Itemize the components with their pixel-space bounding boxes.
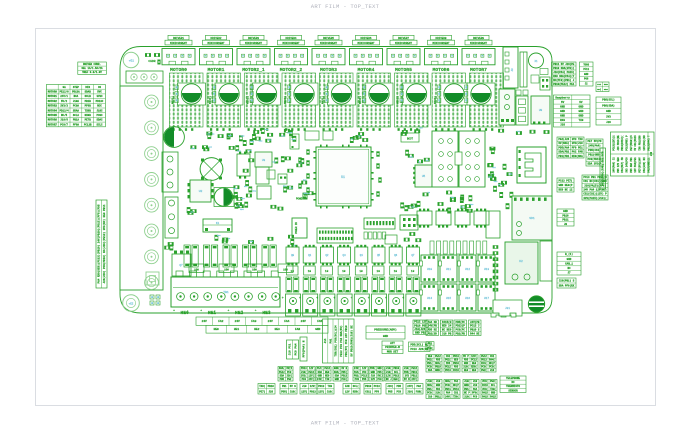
svg-text:J10 PC1: J10 PC1: [289, 343, 292, 355]
svg-text:PG2 FAN: PG2 FAN: [572, 151, 583, 154]
svg-text:PB10: PB10: [562, 214, 569, 217]
svg-text:M1911: M1911: [209, 96, 212, 104]
svg-text:Q4: Q4: [360, 254, 364, 257]
svg-text:J10(PA15)(PF0): J10(PA15)(PF0): [584, 183, 606, 187]
svg-text:VREF 0.8/1.0V: VREF 0.8/1.0V: [82, 71, 102, 74]
svg-text:24V(PB: 24V(PB: [428, 324, 438, 328]
svg-text:PB11: PB11: [435, 395, 441, 398]
svg-text:PF0(PA4) N: PF0(PA4) N: [302, 340, 306, 357]
svg-text:MOTOR5: MOTOR5: [48, 114, 58, 117]
svg-text:PRESSURE(ADV): PRESSURE(ADV): [374, 327, 397, 331]
svg-text:12V PA4(PE1: 12V PA4(PE1: [634, 157, 637, 173]
svg-text:24V: 24V: [235, 320, 240, 323]
svg-text:M7911: M7911: [434, 96, 437, 104]
svg-text:MINICURRENT: MINICURRENT: [357, 42, 375, 45]
svg-text:PF0: PF0: [302, 378, 307, 381]
svg-text:PA4(J26) RX: PA4(J26) RX: [643, 157, 646, 173]
svg-text:MGR SET: MGR SET: [387, 350, 399, 353]
svg-text:TX0(CS1) PC9(SCL)(24: TX0(CS1) PC9(SCL)(24: [334, 325, 338, 357]
svg-text:J10: J10: [428, 395, 433, 398]
svg-text:Q2: Q2: [325, 254, 329, 257]
svg-text:J14: J14: [324, 338, 327, 343]
svg-text:PA15: PA15: [490, 395, 496, 398]
svg-text:CS1 NC(CS1)(GND: CS1 NC(CS1)(GND: [583, 179, 607, 183]
svg-text:DC: DC: [511, 381, 515, 384]
svg-text:GND(: GND(: [464, 384, 470, 387]
svg-text:M2911: M2911: [247, 96, 250, 104]
svg-text:24V(: 24V(: [354, 367, 360, 370]
svg-text:J26: J26: [560, 124, 565, 127]
svg-text:10: 10: [359, 270, 363, 273]
svg-text:PC9(PC: PC9(PC: [456, 328, 466, 332]
svg-text:PE7(: PE7(: [259, 390, 266, 393]
svg-text:PD5(PA4: PD5(PA4: [558, 145, 569, 149]
svg-text:12V: 12V: [362, 367, 367, 370]
svg-text:GND: GND: [560, 115, 565, 118]
svg-text:DRIVER9: DRIVER9: [473, 37, 484, 40]
svg-text:GND: GND: [436, 384, 441, 387]
svg-text:HE0(: HE0(: [393, 378, 399, 381]
svg-text:SDAC: SDAC: [96, 119, 103, 122]
svg-text:CHDR: CHDR: [148, 60, 155, 63]
svg-text:U14: U14: [427, 297, 432, 300]
svg-text:HE0 24: HE0 24: [442, 325, 452, 328]
svg-text:24V(: 24V(: [411, 378, 417, 381]
svg-text:GND: GND: [578, 110, 583, 113]
svg-text:+: +: [200, 309, 202, 312]
svg-text:+: +: [316, 297, 318, 301]
svg-text:+: +: [299, 297, 301, 301]
svg-text:5V(5: 5V(5: [286, 367, 292, 370]
svg-text:PD13: PD13: [393, 374, 399, 377]
svg-text:-: -: [214, 309, 216, 312]
svg-text:DRIVER5: DRIVER5: [323, 37, 334, 40]
svg-text:PB1(: PB1(: [354, 374, 360, 377]
svg-text:HE0: HE0: [325, 374, 330, 377]
svg-text:MINICURRENT: MINICURRENT: [395, 42, 413, 45]
svg-text:PD5 RX: PD5 RX: [428, 329, 438, 332]
svg-text:MOTOR1: MOTOR1: [48, 95, 58, 98]
svg-text:PC9 PA4: PC9 PA4: [295, 343, 298, 355]
svg-text:PB10 SDA(3V3)(: PB10 SDA(3V3)(: [553, 67, 575, 70]
svg-text:-: -: [241, 309, 243, 312]
svg-text:NC HE0: NC HE0: [442, 329, 452, 332]
svg-text:J10(: J10(: [386, 371, 392, 374]
svg-text:TELEPHONE: TELEPHONE: [506, 377, 520, 380]
svg-text:PE12: PE12: [308, 371, 314, 374]
svg-text:MOTOR2_2: MOTOR2_2: [280, 67, 303, 73]
svg-text:GND: GND: [318, 374, 323, 377]
svg-text:J3: J3: [511, 68, 514, 72]
svg-text:PB11 5V J26(PE: PB11 5V J26(PE: [553, 63, 575, 66]
svg-text:GND: GND: [560, 110, 565, 113]
svg-text:5VC: 5VC: [97, 91, 102, 94]
svg-text:PA1: PA1: [329, 338, 332, 343]
svg-text:NC/5: NC/5: [61, 113, 68, 117]
svg-text:24V(: 24V(: [445, 395, 451, 398]
svg-text:PG2(: PG2(: [490, 380, 496, 383]
svg-text:5V: 5V: [561, 101, 565, 104]
svg-text:MINICURRENT: MINICURRENT: [207, 42, 225, 45]
svg-text:MINICURRENT: MINICURRENT: [282, 42, 300, 45]
svg-text:PG2(: PG2(: [481, 369, 487, 372]
svg-text:12V(: 12V(: [318, 390, 325, 393]
svg-text:24V: 24V: [268, 320, 273, 323]
svg-text:5V PD13(FAN)(J10) RX: 5V PD13(FAN)(J10) RX: [349, 325, 353, 357]
svg-text:GND HE0(P: GND HE0(P: [558, 183, 572, 187]
svg-text:+: +: [402, 297, 404, 301]
svg-text:PE12/0: PE12/0: [60, 90, 70, 94]
svg-text:FA4: FA4: [284, 320, 289, 323]
svg-text:CS1: CS1: [454, 392, 459, 395]
svg-text:PF0(: PF0(: [377, 378, 383, 381]
svg-text:HE3: HE3: [275, 328, 280, 331]
svg-text:Q7: Q7: [179, 264, 183, 267]
svg-text:5V CS1(PA15: 5V CS1(PA15: [634, 135, 637, 151]
svg-text:CS1(: CS1(: [365, 390, 372, 393]
svg-text:DRIVER7: DRIVER7: [398, 37, 409, 40]
svg-text:PB10(PE12) PE1: PB10(PE12) PE1: [553, 83, 575, 86]
svg-text:TX0B: TX0B: [85, 109, 92, 112]
svg-text:M4911: M4911: [322, 96, 325, 104]
svg-text:-: -: [187, 309, 189, 312]
svg-text:MOTOR6: MOTOR6: [48, 119, 58, 122]
svg-text:GND: GND: [371, 371, 376, 374]
svg-text:GND: GND: [383, 335, 388, 338]
svg-text:J10 PB: J10 PB: [442, 333, 452, 336]
svg-text:PB11: PB11: [411, 371, 417, 374]
svg-text:PB11: PB11: [411, 374, 417, 377]
svg-text:STEP: STEP: [73, 86, 80, 89]
svg-text:PE7(PB10)(5: PE7(PB10)(5: [630, 135, 633, 151]
svg-text:PG2: PG2: [417, 385, 422, 388]
svg-text:+: +: [255, 309, 257, 312]
svg-text:CAN_1: CAN_1: [565, 262, 573, 265]
svg-text:PC13B: PC13B: [84, 123, 92, 126]
svg-text:GND PB1: GND PB1: [415, 332, 426, 335]
svg-text:PC9/7: PC9/7: [60, 122, 68, 126]
svg-text:U5: U5: [422, 175, 426, 178]
svg-text:J26: J26: [269, 390, 274, 393]
svg-text:3V3(: 3V3(: [482, 380, 488, 383]
svg-text:PD13C: PD13C: [96, 100, 104, 103]
svg-text:J10(: J10(: [435, 392, 441, 395]
svg-text:PA15: PA15: [453, 369, 459, 372]
svg-text:PF0(: PF0(: [472, 392, 478, 395]
svg-text:SEL 1A/1.5A/2A: SEL 1A/1.5A/2A: [81, 67, 103, 70]
svg-text:GND: GND: [567, 258, 572, 261]
svg-text:J30: J30: [650, 151, 653, 156]
svg-text:U16: U16: [465, 297, 470, 300]
svg-text:J10(: J10(: [464, 380, 470, 383]
svg-text:10A: 10A: [283, 268, 288, 271]
svg-text:J26(PB1) S: J26(PB1) S: [559, 278, 575, 282]
svg-text:U11: U11: [446, 268, 451, 271]
svg-text:5V: 5V: [579, 101, 583, 104]
svg-text:+: +: [173, 309, 175, 312]
svg-text:SDA PF0(RX: SDA PF0(RX: [559, 283, 575, 287]
svg-text:SD1: SD1: [529, 217, 535, 220]
svg-text:+E2: +E2: [129, 302, 134, 305]
svg-text:MINICURRENT: MINICURRENT: [470, 42, 488, 45]
svg-text:J10(: J10(: [427, 380, 433, 383]
svg-text:3V3/3: 3V3/3: [60, 104, 68, 108]
svg-text:PE12 12V: PE12 12V: [414, 321, 427, 324]
svg-text:Raspberry: Raspberry: [555, 95, 570, 99]
svg-text:5V(2: 5V(2: [377, 374, 383, 377]
svg-text:3V3: 3V3: [405, 374, 410, 377]
svg-text:PB10 PD5: PB10 PD5: [414, 324, 427, 327]
svg-text:3V3(: 3V3(: [301, 374, 307, 377]
svg-text:PF0B: PF0B: [85, 105, 92, 108]
svg-text:J10: J10: [436, 380, 441, 383]
svg-text:FA2: FA2: [218, 320, 223, 323]
svg-text:J10(: J10(: [386, 367, 392, 370]
svg-text:Q3: Q3: [343, 254, 347, 257]
svg-text:PA15(H: PA15(H: [442, 320, 452, 324]
svg-text:NC J: NC J: [386, 378, 392, 381]
svg-text:PD13: PD13: [453, 388, 459, 391]
svg-text:SDA(PB1: SDA(PB1: [558, 150, 569, 154]
svg-text:24V(PA4): 24V(PA4): [588, 144, 601, 148]
svg-text:10: 10: [394, 270, 398, 273]
svg-text:SDAB: SDAB: [85, 91, 92, 94]
svg-text:SDA(: SDA(: [334, 371, 340, 374]
svg-text:MINICURRENT: MINICURRENT: [245, 42, 263, 45]
svg-text:Q7: Q7: [411, 254, 415, 257]
svg-text:MOTOR6: MOTOR6: [433, 67, 450, 73]
svg-text:PB1A: PB1A: [73, 119, 80, 122]
svg-text:PC13(PD5) P: PC13(PD5) P: [626, 135, 629, 151]
svg-text:24V/1: 24V/1: [60, 94, 68, 98]
svg-text:PC9A: PC9A: [73, 105, 80, 108]
svg-text:J10(: J10(: [404, 367, 410, 370]
svg-text:PD13: PD13: [310, 390, 317, 393]
svg-text:U12: U12: [465, 268, 470, 271]
svg-text:+: +: [351, 297, 353, 301]
svg-text:M6911: M6911: [397, 96, 400, 104]
svg-text:U17: U17: [484, 297, 489, 300]
svg-text:MINICURRENT: MINICURRENT: [320, 42, 338, 45]
svg-text:J10C: J10C: [96, 109, 103, 112]
svg-text:3V3(PA15)(J10)(: 3V3(PA15)(J10)(: [583, 196, 607, 200]
svg-text:10: 10: [325, 270, 329, 273]
svg-text:DRIVER CURR.: DRIVER CURR.: [83, 63, 101, 66]
svg-text:PB1(SD: PB1(SD: [428, 332, 438, 336]
svg-text:HE0: HE0: [464, 369, 469, 372]
svg-text:SDA: SDA: [280, 374, 285, 377]
svg-text:PG2: PG2: [428, 343, 433, 346]
svg-text:MOTOR0: MOTOR0: [48, 91, 58, 94]
svg-text:NC: NC: [567, 267, 571, 270]
svg-text:5V N: 5V N: [404, 378, 410, 381]
svg-text:PG2(J26: PG2(J26: [558, 137, 569, 141]
svg-text:PC13(12V)(1: PC13(12V)(1: [613, 135, 616, 151]
svg-text:J10(J26): J10(J26): [414, 327, 427, 331]
svg-text:U1: U1: [341, 175, 345, 179]
svg-text:DRIVER3: DRIVER3: [248, 37, 259, 40]
svg-text:HE2: HE2: [254, 328, 259, 331]
svg-text:PC9C: PC9C: [96, 114, 103, 117]
svg-text:TOGG: TOGG: [583, 63, 589, 66]
svg-text:24V(: 24V(: [407, 385, 414, 388]
svg-text:PB10 S: PB10 S: [470, 329, 480, 332]
svg-text:MOTOR7: MOTOR7: [470, 67, 487, 73]
svg-text:PD5: PD5: [388, 390, 393, 393]
svg-text:PA4 SD: PA4 SD: [428, 321, 438, 324]
svg-text:PC9: PC9: [473, 395, 478, 398]
svg-text:PC9(: PC9(: [445, 384, 451, 387]
svg-text:J10: J10: [473, 384, 478, 387]
svg-text:J10/6: J10/6: [60, 118, 68, 122]
svg-text:J31: J31: [505, 307, 510, 310]
svg-text:Q1: Q1: [308, 254, 312, 257]
svg-text:U9: U9: [539, 109, 543, 112]
svg-text:J10A: J10A: [73, 100, 80, 103]
svg-text:PD13(P: PD13(P: [456, 324, 466, 328]
svg-text:MOTOR2_1: MOTOR2_1: [242, 67, 265, 73]
svg-text:10A: 10A: [224, 268, 229, 271]
svg-text:GND: GND: [560, 105, 565, 108]
svg-text:TB1: TB1: [223, 291, 229, 294]
svg-text:PG2: PG2: [287, 378, 292, 381]
svg-text:PF0 PE1: PF0 PE1: [572, 146, 583, 149]
svg-text:J26(: J26(: [387, 385, 394, 388]
svg-text:GA: GA: [63, 86, 67, 89]
svg-text:PB1(: PB1(: [464, 388, 470, 391]
svg-text:NCA: NCA: [74, 95, 79, 98]
svg-text:TX0(: TX0(: [453, 395, 459, 398]
svg-text:PA4: PA4: [473, 388, 478, 391]
svg-text:PD13: PD13: [341, 374, 347, 377]
svg-text:PF0(: PF0(: [341, 378, 347, 381]
svg-text:PD5(CS1): PD5(CS1): [588, 148, 601, 152]
svg-text:3V3(: 3V3(: [482, 388, 488, 391]
svg-text:3V3C: 3V3C: [96, 95, 103, 98]
svg-text:PD5(: PD5(: [377, 371, 383, 374]
svg-text:SDA(: SDA(: [427, 384, 433, 387]
svg-text:+: +: [385, 297, 387, 301]
svg-text:MOTOR4: MOTOR4: [358, 67, 375, 73]
svg-text:PD5(: PD5(: [370, 367, 376, 370]
svg-text:PC9: PC9: [355, 378, 360, 381]
svg-text:ATT: ATT: [390, 342, 395, 345]
svg-text:J7: J7: [567, 272, 571, 275]
svg-text:PC13: PC13: [374, 385, 381, 388]
svg-text:FAN(: FAN(: [416, 390, 423, 393]
svg-text:GND: GND: [606, 110, 611, 113]
svg-text:TX0: TX0: [328, 385, 333, 388]
svg-text:PF0: PF0: [375, 390, 380, 393]
svg-text:3V3(J10: 3V3(J10: [572, 141, 583, 145]
svg-text:PB10: PB10: [365, 385, 372, 388]
svg-text:PD13(PA4) T: PD13(PA4) T: [647, 135, 650, 151]
svg-text:PE7B: PE7B: [85, 119, 92, 122]
svg-text:U2: U2: [199, 190, 203, 193]
svg-text:FA3: FA3: [251, 320, 256, 323]
svg-text:PC13 PB1 PE12(N: PC13 PB1 PE12(N: [583, 175, 607, 179]
svg-text:J10(: J10(: [301, 371, 307, 374]
svg-text:NC(: NC(: [597, 88, 601, 91]
svg-text:24V(: 24V(: [317, 378, 323, 381]
svg-text:10: 10: [377, 270, 381, 273]
svg-text:U13: U13: [484, 268, 489, 271]
svg-text:TX0(: TX0(: [259, 385, 266, 388]
svg-text:PB1: PB1: [436, 388, 441, 391]
svg-text:SDA(: SDA(: [445, 380, 451, 383]
svg-text:+E1: +E1: [129, 60, 135, 63]
svg-text:10: 10: [342, 270, 346, 273]
svg-text:PD13A: PD13A: [72, 91, 80, 94]
svg-text:CS: CS: [98, 86, 102, 89]
svg-text:CS1(CS1)(12V) P: CS1(CS1)(12V) P: [583, 192, 607, 196]
svg-text:PB1(PB1: PB1(PB1: [558, 154, 569, 158]
svg-text:BOOT: BOOT: [407, 137, 414, 140]
svg-text:TX0(: TX0(: [490, 388, 496, 391]
svg-text:M0911: M0911: [172, 96, 175, 104]
svg-text:PF11: PF11: [583, 68, 589, 71]
svg-text:12V(: 12V(: [308, 374, 314, 377]
svg-text:J10: J10: [302, 385, 307, 388]
svg-text:PA4 HE: PA4 HE: [470, 333, 480, 336]
svg-text:MOTOR3: MOTOR3: [320, 67, 337, 73]
svg-text:PD5 12V HE0: PD5 12V HE0: [617, 157, 620, 173]
svg-text:PA4 RX0(HE0)(PC13)(PB10) 24V(P: PA4 RX0(HE0)(PC13)(PB10) 24V(PB10)(PD13)…: [97, 204, 101, 283]
svg-text:PD5: PD5: [397, 385, 402, 388]
svg-text:PA4: PA4: [446, 392, 451, 395]
svg-text:RX0: RX0: [604, 83, 609, 86]
svg-text:NCC: NCC: [97, 105, 102, 108]
svg-text:TX0: TX0: [578, 119, 583, 122]
svg-text:PD5: PD5: [280, 378, 285, 381]
svg-text:MOTOR4: MOTOR4: [48, 109, 58, 112]
svg-text:3V3 TX0: 3V3 TX0: [572, 138, 583, 141]
svg-text:NC P: NC P: [464, 392, 470, 395]
svg-text:MOTOR7: MOTOR7: [48, 123, 58, 126]
svg-text:POWER: POWER: [296, 198, 304, 201]
svg-text:3V3: 3V3: [606, 116, 611, 119]
svg-text:PC9(: PC9(: [427, 392, 433, 395]
svg-text:DRIVER1: DRIVER1: [173, 37, 184, 40]
svg-text:SCLA: SCLA: [73, 114, 80, 117]
svg-text:5V(SDA): 5V(SDA): [558, 141, 569, 145]
svg-text:PB1(: PB1(: [427, 388, 433, 391]
svg-text:K2: K2: [519, 260, 523, 263]
svg-text:12V: 12V: [309, 367, 314, 370]
svg-text:PD5(: PD5(: [404, 371, 410, 374]
svg-text:HE0: HE0: [214, 328, 219, 331]
svg-text:PG6: PG6: [584, 78, 589, 81]
svg-text:PB1: PB1: [282, 385, 287, 388]
svg-text:PB11: PB11: [562, 219, 569, 222]
svg-text:GND: GND: [578, 105, 583, 108]
svg-text:RX0(: RX0(: [353, 390, 360, 393]
svg-text:PC9: PC9: [397, 390, 402, 393]
svg-text:J10(: J10(: [327, 390, 334, 393]
svg-text:M3911: M3911: [284, 96, 287, 104]
svg-text:DRIVER6: DRIVER6: [361, 37, 372, 40]
svg-text:POWER IN: POWER IN: [295, 222, 298, 234]
svg-text:PD13(PA15)(: PD13(PA15)(: [621, 135, 624, 151]
svg-text:M5911: M5911: [359, 96, 362, 104]
svg-text:PA15: PA15: [482, 384, 488, 387]
svg-text:24V(PA4) J2: 24V(PA4) J2: [613, 157, 616, 173]
svg-text:J26 PD13(HE: J26 PD13(HE: [617, 135, 620, 151]
svg-text:Q0: Q0: [291, 254, 295, 257]
svg-text:U3: U3: [262, 159, 266, 162]
svg-text:NC(P: NC(P: [453, 384, 459, 387]
svg-text:FAN: FAN: [295, 328, 300, 331]
